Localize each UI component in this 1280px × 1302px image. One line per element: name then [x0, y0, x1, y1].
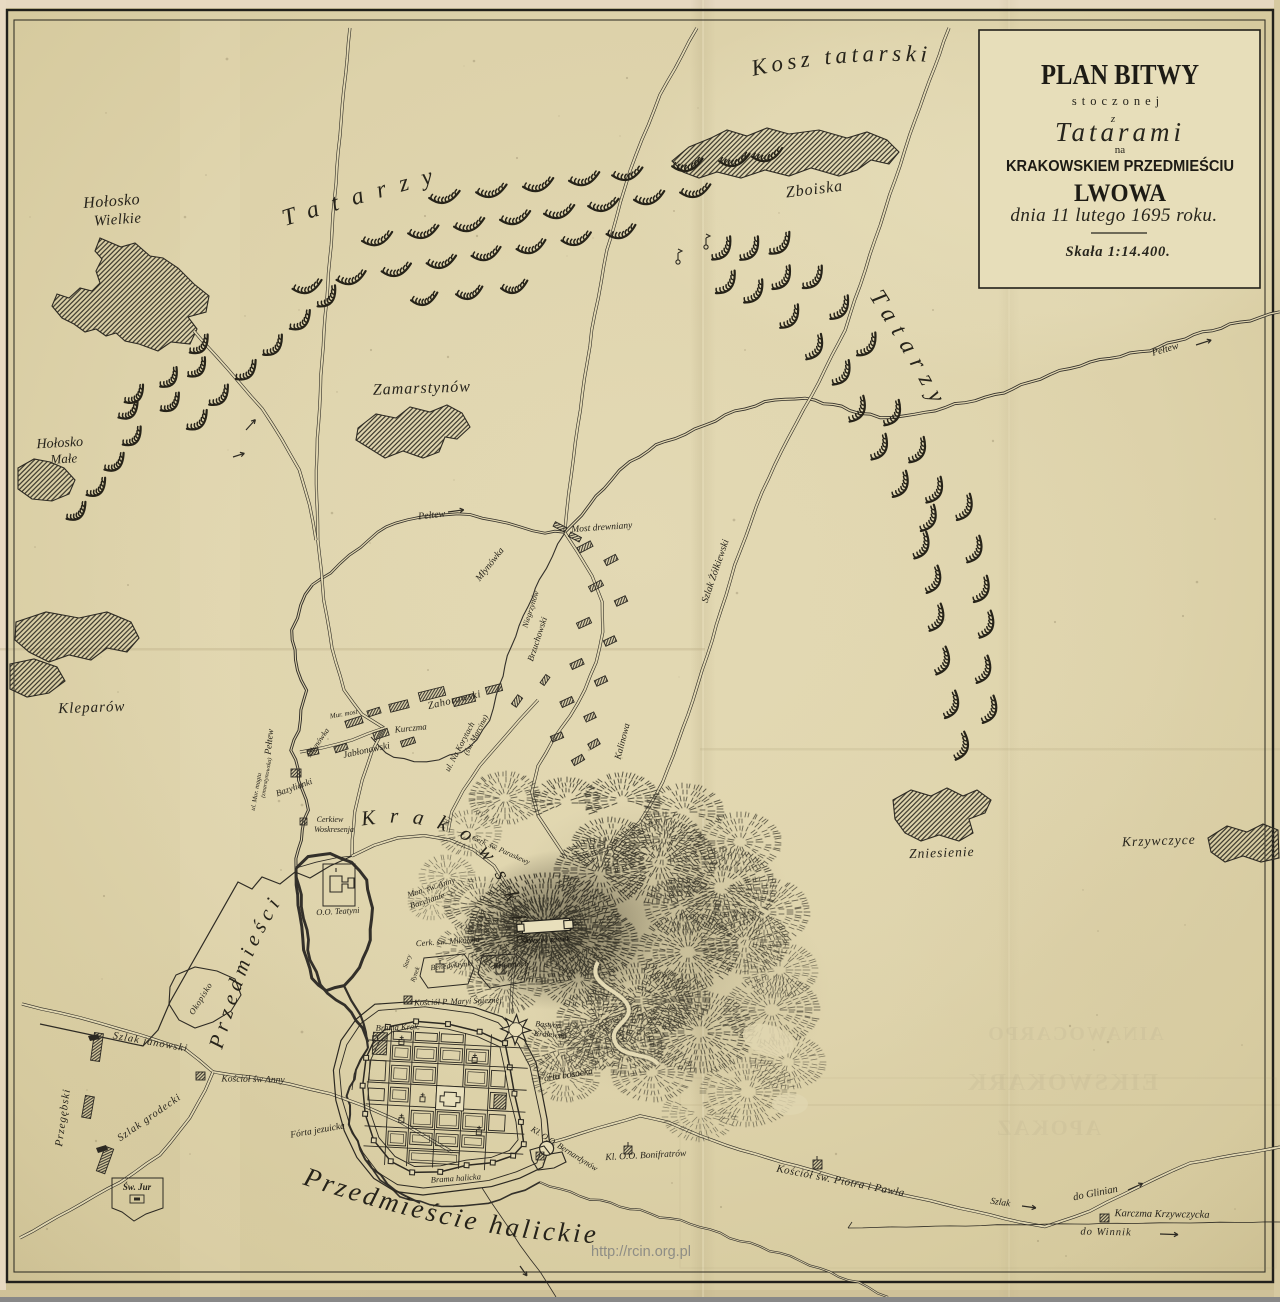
svg-text:stoczonej: stoczonej: [1072, 94, 1164, 108]
svg-text:http://rcin.org.pl: http://rcin.org.pl: [591, 1244, 691, 1260]
svg-text:Woskresenja: Woskresenja: [314, 825, 354, 834]
svg-text:Zamarstynów: Zamarstynów: [373, 378, 472, 398]
svg-text:Krzywczyce: Krzywczyce: [1121, 832, 1196, 850]
svg-text:KRAKOWSKIEM PRZEDMIEŚCIU: KRAKOWSKIEM PRZEDMIEŚCIU: [1006, 156, 1234, 175]
svg-text:Zniesienie: Zniesienie: [909, 844, 975, 861]
svg-text:Cerkiew: Cerkiew: [317, 815, 344, 824]
svg-text:Św. Jur: Św. Jur: [123, 1182, 152, 1192]
svg-text:Małe: Małe: [49, 450, 78, 466]
svg-text:EIKSWOKARK: EIKSWOKARK: [966, 1070, 1158, 1096]
svg-text:Wielkie: Wielkie: [93, 210, 142, 229]
svg-text:LWOWA: LWOWA: [1074, 180, 1166, 207]
svg-text:Tatarami: Tatarami: [1055, 117, 1185, 147]
svg-text:APOKAZ: APOKAZ: [995, 1115, 1101, 1140]
svg-text:Skała 1:14.400.: Skała 1:14.400.: [1065, 244, 1170, 260]
svg-text:PLAN BITWY: PLAN BITWY: [1041, 60, 1199, 91]
svg-text:Karczma Krzywczycka: Karczma Krzywczycka: [1113, 1208, 1209, 1221]
svg-text:Brama Krak.: Brama Krak.: [376, 1021, 421, 1033]
svg-text:dnia 11 lutego 1695 roku.: dnia 11 lutego 1695 roku.: [1010, 205, 1217, 226]
svg-text:do Winnik: do Winnik: [1080, 1227, 1131, 1239]
svg-text:Kościół św Anny: Kościół św Anny: [220, 1074, 285, 1085]
svg-text:na: na: [1115, 144, 1126, 156]
svg-text:Kleparów: Kleparów: [57, 699, 126, 717]
svg-text:AINAWOCARPO: AINAWOCARPO: [986, 1023, 1164, 1045]
